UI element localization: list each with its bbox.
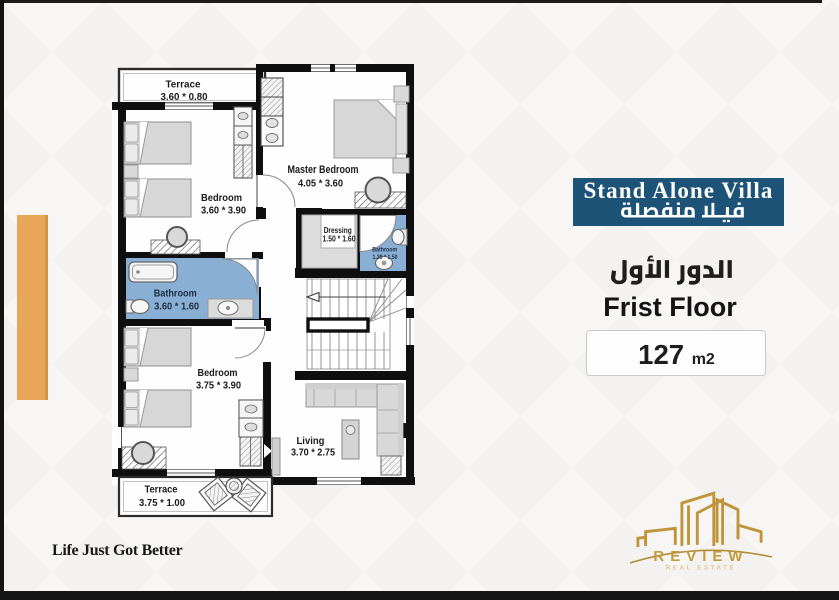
- svg-text:REVIEW: REVIEW: [653, 548, 748, 565]
- svg-text:REAL ESTATE: REAL ESTATE: [666, 565, 737, 572]
